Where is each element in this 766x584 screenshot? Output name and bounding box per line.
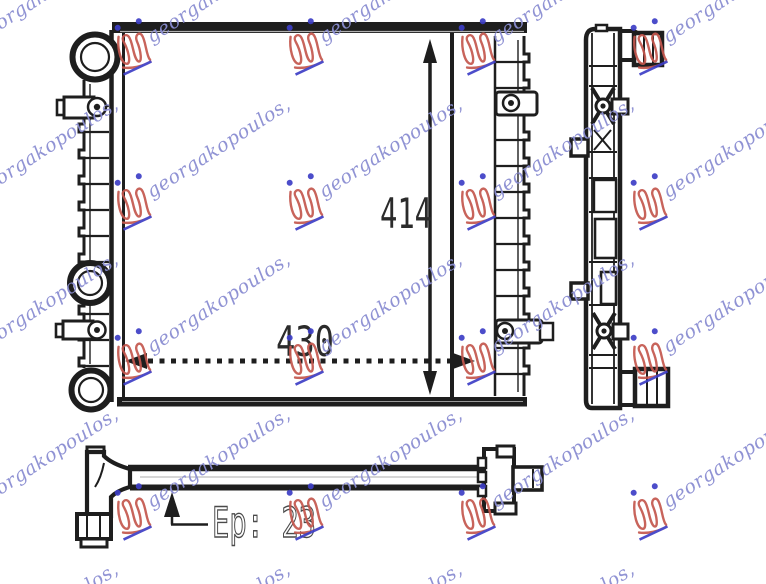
side-view	[571, 25, 668, 408]
bottom-left-port	[72, 371, 111, 410]
radiator-technical-drawing: 414 430	[0, 0, 766, 584]
width-dimension: 430	[125, 317, 475, 369]
bottom-left-elbow	[77, 447, 130, 547]
bottom-right-connector	[478, 446, 542, 514]
upper-right-fitting	[496, 92, 537, 115]
arrow-down-icon	[423, 371, 437, 395]
lower-left-fitting	[56, 321, 106, 339]
depth-dimension-label: Ep: 23	[212, 498, 316, 547]
drain-valve-top	[592, 88, 628, 124]
arrow-left-icon	[125, 353, 147, 369]
lower-right-fitting	[496, 320, 553, 343]
height-dimension-label: 414	[380, 189, 432, 238]
arrow-right-icon	[453, 353, 475, 369]
top-left-port	[73, 35, 118, 80]
height-dimension: 414	[380, 39, 437, 395]
side-left-stub-bottom	[571, 283, 588, 299]
top-outlet-flange	[634, 33, 662, 65]
front-view: 414 430	[56, 22, 553, 410]
drawing-svg: 414 430	[0, 0, 766, 584]
arrow-up-icon	[423, 39, 437, 63]
drain-valve-bottom	[593, 313, 628, 349]
side-left-stub-top	[571, 139, 588, 156]
depth-dimension: Ep: 23	[164, 492, 316, 547]
upper-left-fitting	[57, 97, 106, 118]
width-dimension-label: 430	[276, 317, 334, 366]
middle-left-port	[70, 263, 110, 303]
bottom-view: Ep: 23	[77, 446, 542, 547]
bottom-outlet-flange	[635, 369, 668, 406]
